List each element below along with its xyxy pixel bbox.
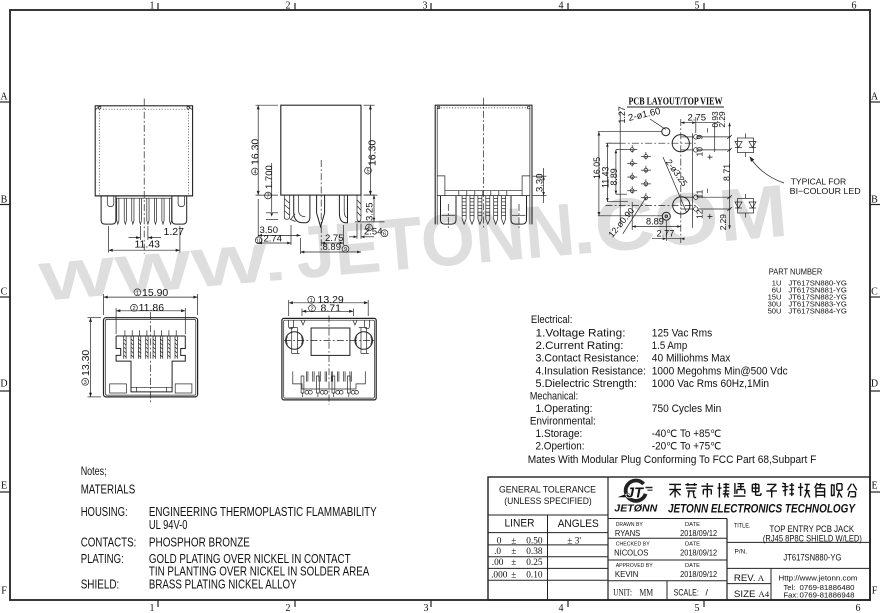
- svg-text:Mechanical:: Mechanical:: [530, 390, 578, 402]
- svg-text:125 Vac Rms: 125 Vac Rms: [652, 328, 712, 340]
- svg-text:3: 3: [423, 1, 428, 12]
- svg-text:A: A: [758, 573, 765, 583]
- svg-text:1: 1: [310, 298, 313, 304]
- svg-text:MATERIALS: MATERIALS: [81, 483, 136, 497]
- svg-text:0: 0: [497, 536, 502, 546]
- svg-text:HOUSING:: HOUSING:: [81, 505, 128, 519]
- svg-text:3.Contact Resistance:: 3.Contact Resistance:: [536, 353, 640, 365]
- svg-text:4: 4: [559, 603, 564, 613]
- svg-text:TITLE.: TITLE.: [734, 523, 751, 530]
- svg-text:D: D: [871, 379, 878, 390]
- svg-text:5.Dielectric Strength:: 5.Dielectric Strength:: [536, 378, 637, 390]
- svg-text:C: C: [871, 287, 878, 298]
- svg-text:P/N.: P/N.: [735, 549, 748, 556]
- svg-text:4: 4: [559, 1, 564, 12]
- svg-text:F: F: [1, 586, 7, 597]
- svg-text:1.700: 1.700: [264, 165, 275, 189]
- svg-text:2.75: 2.75: [688, 113, 707, 124]
- svg-text:7: 7: [266, 194, 269, 200]
- svg-text:11.43: 11.43: [135, 239, 161, 251]
- svg-text:LINER: LINER: [505, 518, 535, 530]
- svg-text:A: A: [871, 92, 879, 103]
- svg-text:−: −: [703, 188, 713, 193]
- svg-text:-40℃ To +85℃: -40℃ To +85℃: [652, 428, 722, 440]
- svg-text:C: C: [1, 287, 8, 298]
- svg-text:PLATING:: PLATING:: [81, 552, 124, 566]
- svg-text:2018/09/12: 2018/09/12: [680, 528, 717, 538]
- svg-text:E: E: [1, 481, 7, 492]
- svg-text:3: 3: [424, 603, 429, 613]
- svg-text:JETØNN: JETØNN: [614, 503, 657, 515]
- svg-text:A4: A4: [758, 589, 769, 599]
- svg-text:2018/09/12: 2018/09/12: [680, 548, 717, 558]
- svg-text:D: D: [0, 379, 7, 390]
- svg-text:2018/09/12: 2018/09/12: [680, 569, 717, 579]
- svg-text:CONTACTS:: CONTACTS:: [81, 535, 137, 549]
- svg-text:PART NUMBER: PART NUMBER: [769, 267, 823, 276]
- svg-text:2.Current Rating:: 2.Current Rating:: [536, 340, 624, 352]
- svg-text:PCB LAYOUT/TOP VIEW: PCB LAYOUT/TOP VIEW: [629, 97, 723, 108]
- svg-text:6: 6: [852, 1, 857, 12]
- svg-text:Environmental:: Environmental:: [530, 415, 596, 427]
- svg-text:10: 10: [695, 147, 705, 157]
- svg-text:9: 9: [695, 135, 705, 140]
- svg-text:± 3': ± 3': [567, 536, 581, 546]
- svg-text:SCALE:: SCALE:: [674, 587, 699, 597]
- svg-text:2: 2: [132, 306, 135, 312]
- svg-text:1: 1: [136, 290, 139, 296]
- svg-text:10: 10: [256, 238, 262, 244]
- svg-text:9: 9: [344, 247, 347, 253]
- svg-text:1000 Vac Rms 60Hz,1Min: 1000 Vac Rms 60Hz,1Min: [652, 378, 769, 390]
- svg-text:(UNLESS SPECIFIED): (UNLESS SPECIFIED): [504, 496, 592, 506]
- svg-text:TIN PLANTING OVER NICKEL IN SO: TIN PLANTING OVER NICKEL IN SOLDER AREA: [149, 565, 370, 579]
- svg-text:8.89: 8.89: [646, 216, 664, 226]
- svg-text:UNIT:: UNIT:: [613, 587, 632, 597]
- svg-text:RYANS: RYANS: [615, 528, 641, 538]
- svg-text:GENERAL TOLERANCE: GENERAL TOLERANCE: [499, 485, 596, 495]
- svg-text:3.30: 3.30: [535, 174, 546, 193]
- svg-text:2.29: 2.29: [717, 111, 727, 128]
- svg-text:JT617SN880-YG: JT617SN880-YG: [783, 553, 841, 563]
- svg-text:B: B: [871, 195, 878, 206]
- svg-text:1.27: 1.27: [164, 226, 185, 238]
- svg-text:JETONN ELECTRONICS TECHNOLOGY: JETONN ELECTRONICS TECHNOLOGY: [668, 502, 856, 516]
- svg-text:+: +: [706, 214, 717, 220]
- svg-text:F: F: [872, 586, 878, 597]
- svg-text:2.74: 2.74: [264, 234, 283, 245]
- svg-text:0.25: 0.25: [526, 558, 543, 568]
- svg-text:16.30: 16.30: [250, 139, 262, 165]
- svg-text:±: ±: [511, 547, 516, 557]
- svg-text:50U: 50U: [768, 307, 782, 316]
- svg-text:KEVIN: KEVIN: [615, 569, 639, 579]
- svg-text:1.Operating:: 1.Operating:: [536, 403, 593, 415]
- svg-text:2.54: 2.54: [364, 227, 383, 238]
- svg-text:1: 1: [150, 603, 155, 613]
- svg-text:Http://www.jetonn.com: Http://www.jetonn.com: [779, 573, 858, 582]
- svg-text:5: 5: [695, 603, 700, 613]
- svg-text:B: B: [1, 195, 8, 206]
- svg-text:−: −: [703, 128, 713, 133]
- svg-text:6: 6: [856, 603, 861, 613]
- svg-text:1: 1: [150, 1, 155, 12]
- svg-text:TYPICAL FOR: TYPICAL FOR: [791, 176, 847, 186]
- svg-text:16.30: 16.30: [367, 140, 379, 166]
- svg-text:6: 6: [383, 231, 386, 237]
- svg-text:Electrical:: Electrical:: [531, 314, 573, 326]
- svg-text:JT617SN884-YG: JT617SN884-YG: [788, 307, 847, 316]
- svg-text:±: ±: [511, 558, 516, 568]
- svg-text:ANGLES: ANGLES: [558, 518, 599, 530]
- svg-text:Notes;: Notes;: [81, 466, 107, 478]
- svg-text:13.30: 13.30: [80, 350, 92, 376]
- svg-text:.0: .0: [494, 547, 501, 557]
- svg-text:2: 2: [286, 1, 291, 12]
- svg-text:A: A: [0, 92, 8, 103]
- svg-text:8.89: 8.89: [609, 168, 619, 185]
- svg-text:0.10: 0.10: [526, 570, 543, 580]
- svg-text:.00: .00: [492, 558, 504, 568]
- svg-text:PHOSPHOR BRONZE: PHOSPHOR BRONZE: [149, 535, 250, 549]
- svg-text:Fax:: Fax:: [784, 590, 799, 599]
- svg-text:(RJ45 8P8C SHIELD W/LED): (RJ45 8P8C SHIELD W/LED): [763, 533, 862, 544]
- svg-text:2: 2: [310, 306, 313, 312]
- svg-text:2.29: 2.29: [718, 214, 728, 231]
- svg-text:MM: MM: [639, 587, 653, 597]
- svg-text:2.77: 2.77: [657, 228, 675, 238]
- svg-text:1000 Megohms Min@500 Vdc: 1000 Megohms Min@500 Vdc: [652, 365, 789, 377]
- svg-text:3: 3: [84, 380, 87, 386]
- svg-text:2: 2: [286, 603, 291, 613]
- svg-text:4: 4: [253, 170, 256, 176]
- svg-text:NICOLOS: NICOLOS: [614, 548, 649, 558]
- svg-text:E: E: [871, 481, 877, 492]
- svg-text:SIZE: SIZE: [734, 589, 756, 600]
- svg-text:-20℃ To +75℃: -20℃ To +75℃: [652, 440, 722, 452]
- svg-text:.000: .000: [491, 570, 508, 580]
- svg-text:11.86: 11.86: [139, 302, 165, 314]
- svg-text:REV.: REV.: [734, 573, 756, 583]
- svg-text:0.50: 0.50: [526, 536, 543, 546]
- svg-text:UL 94V-0: UL 94V-0: [149, 518, 188, 532]
- svg-text:1.Storage:: 1.Storage:: [536, 428, 583, 440]
- svg-text:40 Milliohms Max: 40 Milliohms Max: [652, 353, 731, 365]
- svg-text:1.27: 1.27: [617, 106, 627, 123]
- svg-text:4.Insulation Resistance:: 4.Insulation Resistance:: [536, 365, 646, 377]
- svg-text:0769-81886948: 0769-81886948: [800, 590, 855, 599]
- svg-text:5: 5: [695, 1, 700, 12]
- svg-text:±: ±: [511, 570, 516, 580]
- svg-text:12: 12: [695, 209, 705, 219]
- svg-text:Mates With Modular Plug Confor: Mates With Modular Plug Conforming To FC…: [528, 454, 817, 466]
- svg-text:5: 5: [366, 169, 369, 175]
- svg-text:750 Cycles Min: 750 Cycles Min: [652, 403, 722, 415]
- svg-text:3.25: 3.25: [365, 203, 376, 222]
- svg-text:JT: JT: [626, 486, 644, 502]
- svg-text:BRASS PLATING NICKEL ALLOY: BRASS PLATING NICKEL ALLOY: [149, 578, 297, 592]
- svg-text:SHIELD:: SHIELD:: [81, 578, 120, 592]
- svg-text:8.71: 8.71: [722, 164, 732, 181]
- svg-text:15.90: 15.90: [142, 287, 168, 299]
- svg-text:BI−COLOUR LED: BI−COLOUR LED: [790, 186, 861, 196]
- svg-text:2.Opertion:: 2.Opertion:: [536, 440, 585, 452]
- svg-text:+: +: [706, 154, 717, 160]
- svg-text:1.Voltage Rating:: 1.Voltage Rating:: [536, 328, 626, 340]
- svg-text:8.89: 8.89: [323, 242, 342, 253]
- svg-text:0.38: 0.38: [526, 547, 543, 557]
- svg-text:±: ±: [511, 536, 516, 546]
- svg-text:8.71: 8.71: [321, 303, 342, 315]
- svg-text:1.5 Amp: 1.5 Amp: [652, 340, 687, 352]
